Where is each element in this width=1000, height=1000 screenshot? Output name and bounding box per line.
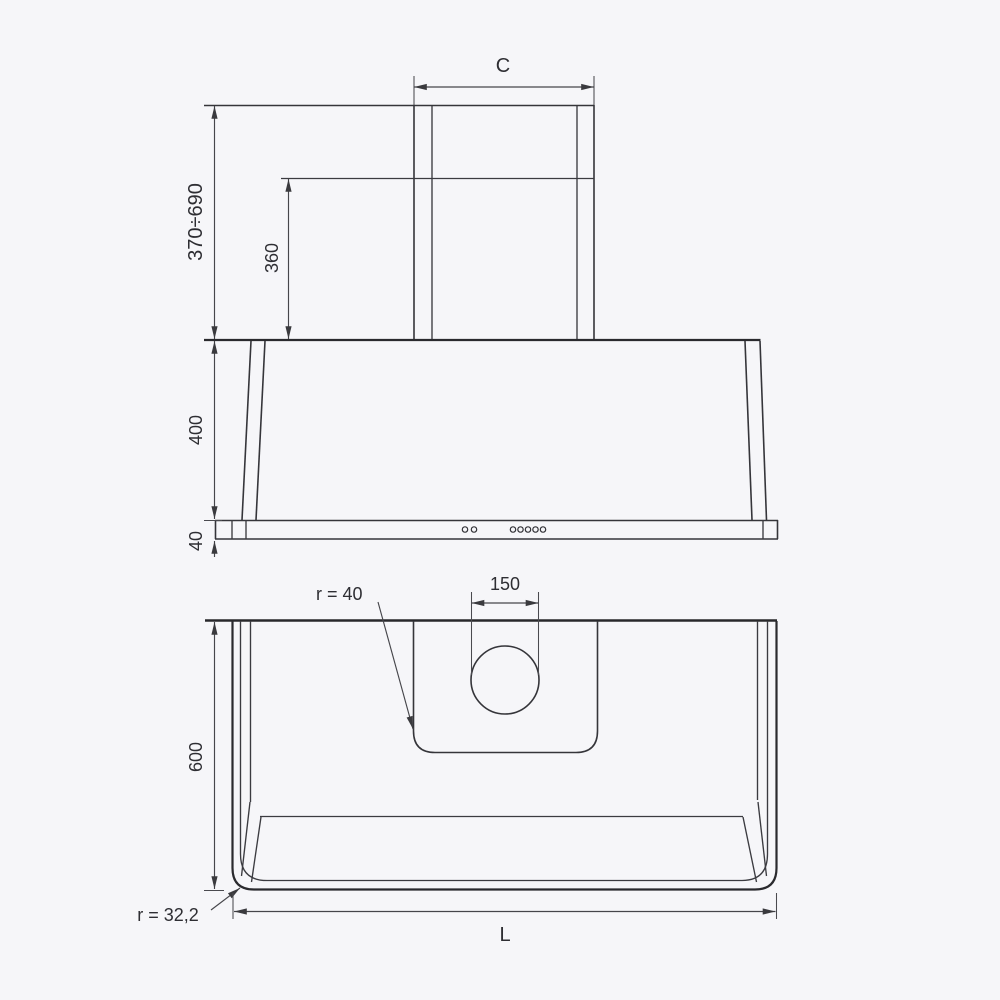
chimney-height-range-label: 370÷690 (185, 183, 207, 261)
technical-drawing-page: C 370÷690 360 (0, 0, 1000, 1000)
chimney-width-label: C (496, 55, 510, 77)
duct-hole-width-label: 150 (490, 574, 520, 594)
depth-label: 600 (186, 742, 206, 772)
page-background (0, 0, 1000, 1000)
body-corner-radius-label: r = 32,2 (137, 905, 199, 925)
recess-radius-label: r = 40 (316, 584, 363, 604)
body-height-label: 400 (186, 415, 206, 445)
overall-width-label: L (499, 924, 510, 946)
lower-chimney-height-label: 360 (262, 243, 282, 273)
base-height-label: 40 (186, 531, 206, 551)
hood-dimension-drawing: C 370÷690 360 (0, 0, 1000, 1000)
